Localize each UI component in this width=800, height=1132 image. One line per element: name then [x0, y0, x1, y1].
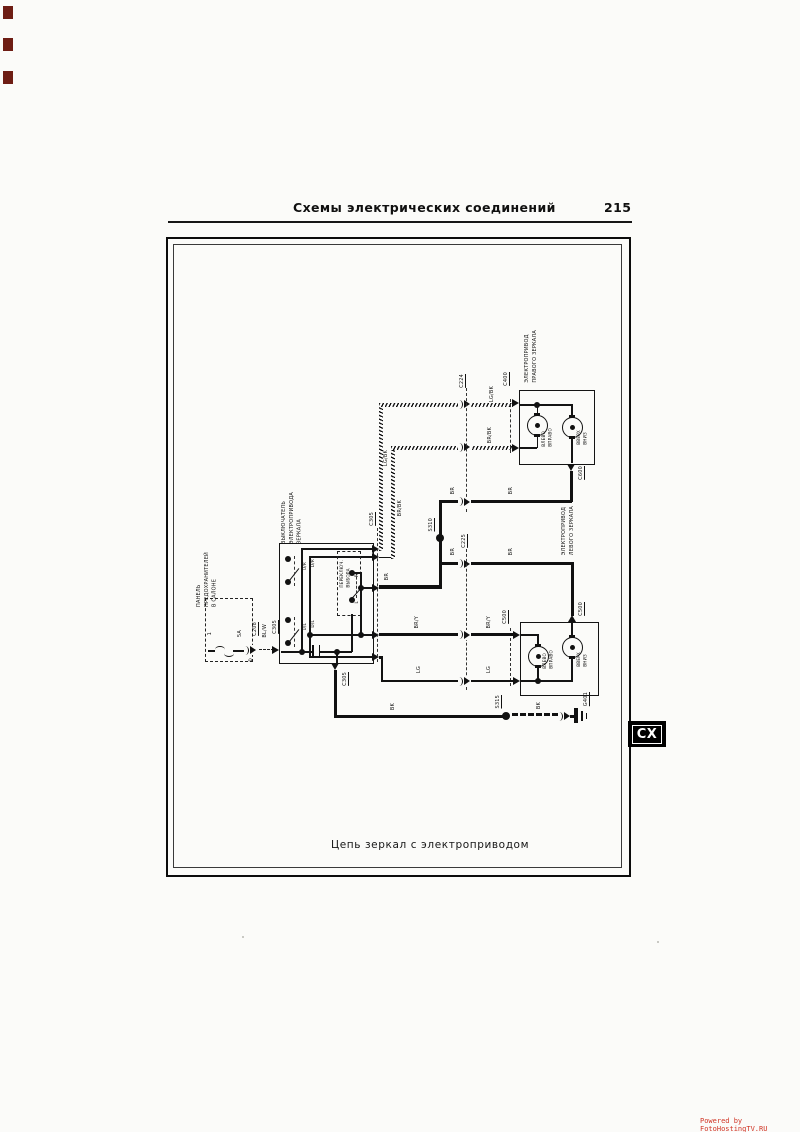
- connector-arrow: [272, 646, 279, 654]
- splice-label-s310: S310: [428, 518, 436, 532]
- wire-label-br: BR: [384, 573, 392, 580]
- section-tab-label: CX: [632, 725, 663, 744]
- wire-br-y: [379, 633, 513, 636]
- mirror-wire: [571, 439, 573, 463]
- mirror-wire: [520, 634, 538, 636]
- switch-wire: [360, 572, 362, 636]
- diagram-caption: Цепь зеркал с электроприводом: [331, 839, 529, 851]
- page-number: 215: [604, 200, 631, 215]
- connector-symbol-c208: [244, 645, 257, 655]
- contact-dot: [285, 556, 291, 562]
- motor-label: ВВЕРХ ВНИЗ: [576, 430, 589, 445]
- connector-symbol-c225: [458, 559, 471, 569]
- header-rule: [168, 221, 632, 223]
- switch-pos-label: U/R: [302, 562, 309, 570]
- switch-pos-label: D/L: [310, 620, 317, 628]
- connector-label-c600: C600: [578, 466, 586, 480]
- ground-label-g401: G401: [583, 692, 591, 706]
- connector-label-c400: C400: [503, 372, 511, 386]
- connector-line-c400: [510, 399, 511, 453]
- diagram-frame-inner: [173, 244, 622, 868]
- junction-dot: [358, 632, 364, 638]
- mirror-wire: [519, 447, 537, 449]
- connector-arrow: [513, 677, 520, 685]
- splice-label-s315: S315: [495, 695, 503, 709]
- wire-label-br-y: BR/Y: [486, 616, 494, 628]
- connector-symbol-c224: [458, 399, 471, 409]
- wire-lg: [381, 680, 514, 683]
- junction-dot: [299, 649, 305, 655]
- page-title: Схемы электрических соединений: [293, 200, 556, 215]
- junction-dot: [358, 585, 364, 591]
- wire-lg: [381, 656, 384, 682]
- scanned-manual-page: Схемы электрических соединений 215 Цепь …: [0, 0, 800, 1132]
- connector-symbol-c225: [458, 676, 471, 686]
- switch-wire: [351, 614, 353, 652]
- ground-icon: [574, 708, 578, 723]
- wire-label-lg: LG: [416, 666, 424, 673]
- wire-bk-dashed: [512, 713, 558, 716]
- mirror-wire: [571, 658, 573, 681]
- motor-label: ВВЕРХ ВНИЗ: [576, 652, 589, 667]
- connector-line-c224: [466, 388, 467, 512]
- scan-speck: [242, 936, 244, 938]
- connector-symbol-c224: [458, 442, 471, 452]
- contact-link: [294, 617, 295, 647]
- wire-br-bk: [391, 446, 513, 450]
- wire-label-bk: BK: [390, 703, 398, 710]
- fuse-panel-label: ПАНЕЛЬ ПРЕДОХРАНИТЕЛЕЙ В САЛОНЕ: [196, 552, 219, 607]
- wire-lg-bk: [379, 403, 513, 407]
- mirror-switch-label: ВЫКЛЮЧАТЕЛЬ ЭЛЕКТРОПРИВОДА ЗЕРКАЛА: [281, 492, 304, 544]
- switch-wire: [281, 651, 312, 653]
- wire-lg-bk: [379, 405, 383, 551]
- ground-icon: [586, 713, 588, 719]
- connector-label-c208: C208: [252, 622, 260, 636]
- scan-mark: [3, 71, 13, 84]
- splice-s315: [502, 712, 510, 720]
- connector-arrow: [331, 663, 339, 670]
- connector-line-c225: [466, 549, 467, 690]
- connector-arrow: [512, 399, 519, 407]
- scan-mark: [3, 6, 13, 19]
- wire-label-lg-bk: LG/BK: [489, 386, 497, 402]
- contact-link: [294, 556, 295, 586]
- wire: [208, 650, 215, 652]
- connector-label-c500: C500: [578, 602, 586, 616]
- left-mirror-label: ЭЛЕКТРОПРИВОД ЛЕВОГО ЗЕРКАЛА: [561, 506, 577, 555]
- switch-wire: [309, 557, 311, 657]
- pin-label-d: D: [248, 658, 255, 661]
- capacitor-icon: [312, 645, 314, 658]
- wire-br-bk: [391, 448, 395, 559]
- wire-label-br: BR: [450, 548, 458, 555]
- section-tab: CX: [628, 721, 666, 747]
- watermark: Powered by FotoHostingTV.RU: [700, 1117, 800, 1132]
- connector-label-c225: C225: [461, 534, 469, 548]
- scan-speck: [657, 941, 659, 943]
- fuse-rating-label: 5A: [237, 630, 245, 637]
- wire-bk: [334, 670, 338, 718]
- wire-label-br: BR: [508, 548, 516, 555]
- ground-icon: [581, 711, 584, 721]
- junction-dot: [535, 678, 541, 684]
- capacitor-icon: [319, 645, 321, 658]
- wire-bk: [334, 715, 506, 719]
- wire-label-lg: LG: [486, 666, 494, 673]
- connector-label-c500: C500: [502, 610, 510, 624]
- wire-label-bl-w: BL/W: [262, 624, 270, 638]
- junction-dot: [307, 632, 313, 638]
- connector-label-c305: C305: [369, 512, 377, 526]
- wire-label-br: BR: [450, 487, 458, 494]
- connector-label-c305: C305: [342, 672, 350, 686]
- connector-label-c224: C224: [459, 374, 467, 388]
- wire-label-br-bk: BR/BK: [397, 500, 405, 516]
- wire-br: [379, 585, 440, 589]
- switch-wire: [301, 548, 372, 550]
- mirror-wire: [519, 404, 572, 406]
- wire-label-lg-bk: LG/BK: [383, 450, 391, 466]
- wire-label-bk: BK: [536, 702, 544, 709]
- junction-dot: [334, 649, 340, 655]
- wire-br: [570, 471, 574, 502]
- connector-symbol-c224: [458, 497, 471, 507]
- contact-dot: [285, 617, 291, 623]
- switch-pos-label: U/L: [302, 623, 309, 630]
- fuse-number-label: 1: [207, 632, 215, 635]
- wire-br: [571, 562, 575, 616]
- splice-s310: [436, 534, 444, 542]
- connector-line-c305: [377, 528, 378, 662]
- wire-label-br-bk: BR/BK: [487, 427, 495, 443]
- connector-arrow: [513, 631, 520, 639]
- mirror-wire: [520, 680, 573, 682]
- scan-mark: [3, 38, 13, 51]
- connector-line-c500: [510, 628, 511, 686]
- connector-arrow: [567, 464, 575, 471]
- connector-symbol-c225: [458, 630, 471, 640]
- motor-label: ВЛЕВО ВПРАВО: [542, 650, 555, 669]
- connector-arrow: [512, 444, 519, 452]
- wire-label-br-y: BR/Y: [414, 616, 422, 628]
- connector-arrow: [568, 615, 576, 622]
- right-mirror-label: ЭЛЕКТРОПРИВОД ПРАВОГО ЗЕРКАЛА: [524, 330, 540, 383]
- wire-br: [439, 500, 443, 589]
- switch-pos-label: D/R: [310, 559, 317, 567]
- motor-label: ВЛЕВО ВПРАВО: [541, 428, 554, 447]
- wire-label-br: BR: [508, 487, 516, 494]
